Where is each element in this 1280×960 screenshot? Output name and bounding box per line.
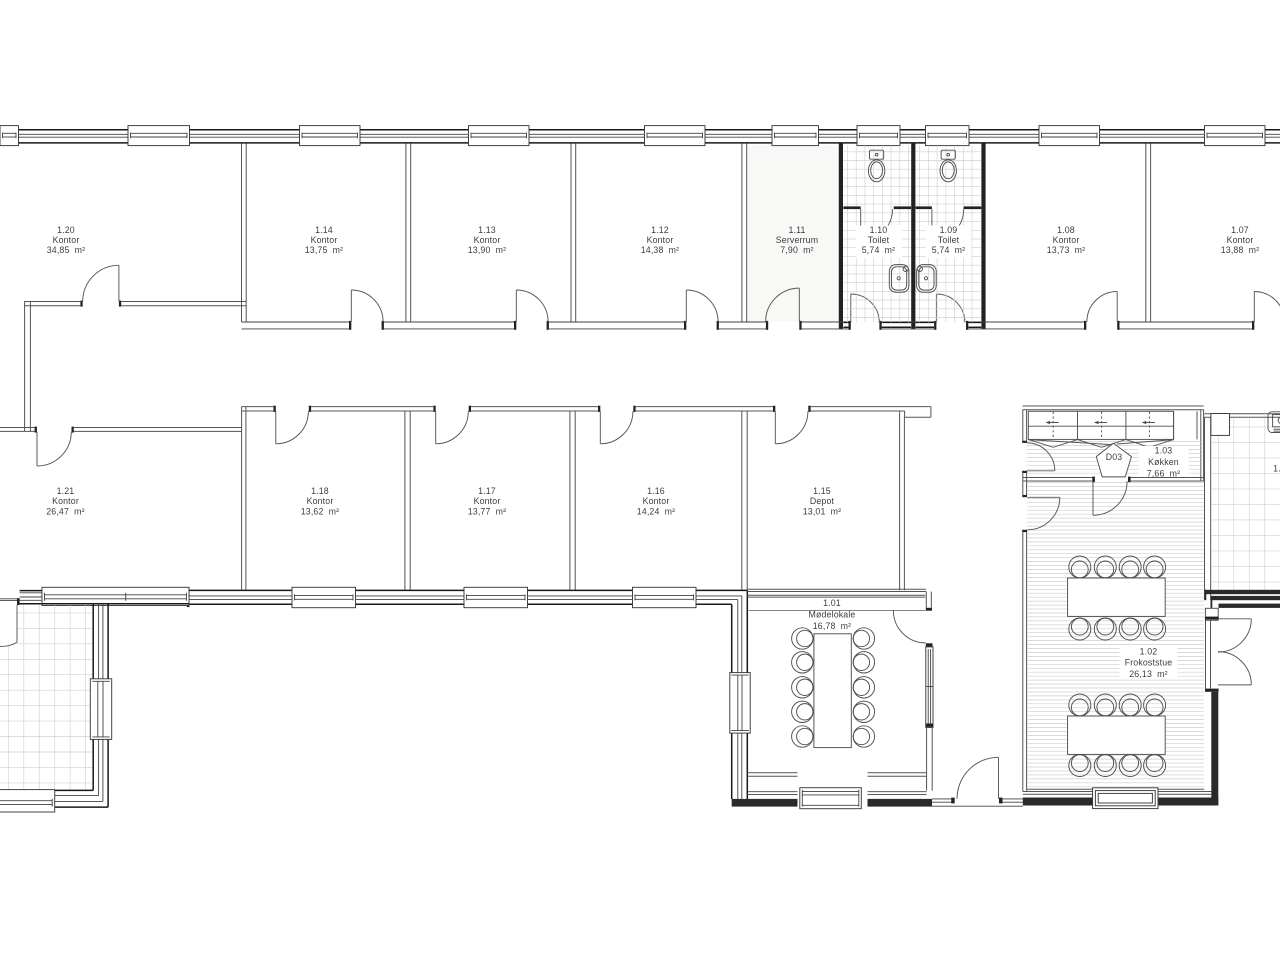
svg-text:1.11: 1.11 bbox=[788, 225, 805, 235]
svg-text:14,38 m²: 14,38 m² bbox=[641, 245, 680, 255]
svg-text:Kontor: Kontor bbox=[53, 235, 80, 245]
svg-text:1.01: 1.01 bbox=[823, 598, 841, 608]
svg-text:7,66 m²: 7,66 m² bbox=[1147, 469, 1180, 479]
svg-text:Toilet: Toilet bbox=[938, 235, 960, 245]
svg-text:13,62 m²: 13,62 m² bbox=[301, 506, 340, 516]
svg-text:Depot: Depot bbox=[810, 496, 835, 506]
svg-text:1.07: 1.07 bbox=[1231, 225, 1249, 235]
svg-text:1.02: 1.02 bbox=[1140, 647, 1158, 657]
svg-text:Serverrum: Serverrum bbox=[776, 235, 818, 245]
svg-text:1.16: 1.16 bbox=[647, 486, 665, 496]
svg-text:1.15: 1.15 bbox=[813, 486, 831, 496]
svg-text:1.12: 1.12 bbox=[651, 225, 669, 235]
svg-text:13,01 m²: 13,01 m² bbox=[803, 506, 842, 516]
svg-text:Kontor: Kontor bbox=[474, 235, 501, 245]
svg-text:1.: 1. bbox=[1273, 464, 1280, 474]
svg-text:Kontor: Kontor bbox=[474, 496, 501, 506]
svg-text:Køkken: Køkken bbox=[1148, 457, 1179, 467]
svg-text:5,74 m²: 5,74 m² bbox=[932, 245, 965, 255]
svg-text:13,77 m²: 13,77 m² bbox=[468, 506, 507, 516]
svg-text:1.03: 1.03 bbox=[1155, 446, 1173, 456]
svg-text:Frokoststue: Frokoststue bbox=[1125, 658, 1173, 668]
svg-text:1.13: 1.13 bbox=[478, 225, 496, 235]
svg-text:Toilet: Toilet bbox=[868, 235, 890, 245]
svg-text:1.20: 1.20 bbox=[57, 225, 75, 235]
svg-text:13,75 m²: 13,75 m² bbox=[305, 245, 344, 255]
svg-text:Kontor: Kontor bbox=[643, 496, 670, 506]
svg-text:Mødelokale: Mødelokale bbox=[809, 610, 856, 620]
svg-text:13,90 m²: 13,90 m² bbox=[468, 245, 507, 255]
svg-text:1.17: 1.17 bbox=[478, 486, 496, 496]
svg-text:Kontor: Kontor bbox=[311, 235, 338, 245]
svg-text:1.09: 1.09 bbox=[940, 225, 958, 235]
svg-text:D03: D03 bbox=[1106, 452, 1123, 462]
svg-text:1.08: 1.08 bbox=[1057, 225, 1075, 235]
svg-text:Kontor: Kontor bbox=[1053, 235, 1080, 245]
svg-text:13,88 m²: 13,88 m² bbox=[1221, 245, 1260, 255]
svg-text:Kontor: Kontor bbox=[1227, 235, 1254, 245]
svg-text:34,85 m²: 34,85 m² bbox=[47, 245, 86, 255]
svg-text:Kontor: Kontor bbox=[307, 496, 334, 506]
svg-text:26,47 m²: 26,47 m² bbox=[46, 506, 85, 516]
svg-text:26,13 m²: 26,13 m² bbox=[1129, 669, 1168, 679]
svg-text:5,74 m²: 5,74 m² bbox=[862, 245, 895, 255]
svg-text:14,24 m²: 14,24 m² bbox=[637, 506, 676, 516]
svg-text:Kontor: Kontor bbox=[647, 235, 674, 245]
svg-text:1.10: 1.10 bbox=[870, 225, 888, 235]
svg-text:7,90 m²: 7,90 m² bbox=[780, 245, 813, 255]
svg-text:1.14: 1.14 bbox=[315, 225, 333, 235]
svg-text:1.18: 1.18 bbox=[311, 486, 329, 496]
svg-text:Kontor: Kontor bbox=[52, 496, 79, 506]
svg-text:16,78 m²: 16,78 m² bbox=[813, 621, 852, 631]
svg-text:1.21: 1.21 bbox=[57, 486, 75, 496]
svg-text:13,73 m²: 13,73 m² bbox=[1047, 245, 1086, 255]
